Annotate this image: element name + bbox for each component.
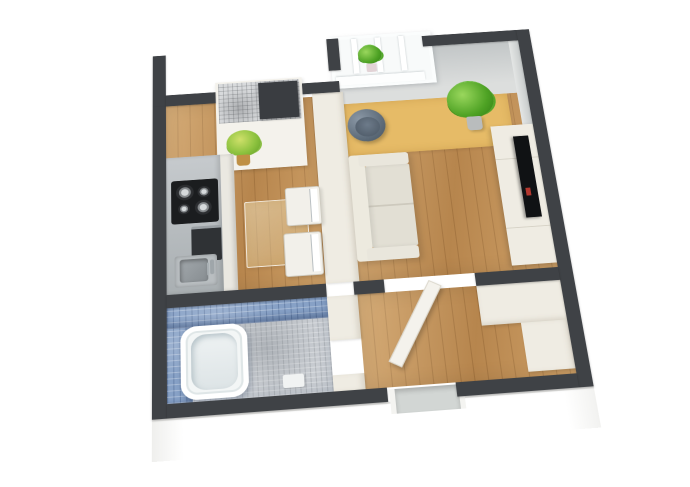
bath-hall-partition-upper <box>327 295 361 341</box>
bath-mat <box>283 374 305 389</box>
living-room-window <box>329 31 437 89</box>
sofa-seat <box>365 164 419 249</box>
floorplan-scene <box>0 0 690 487</box>
wall-west <box>152 106 167 419</box>
apartment-plan <box>124 24 618 464</box>
tv-screen-detail <box>525 188 531 196</box>
hall-closet <box>476 280 567 326</box>
burner <box>176 184 194 201</box>
sill-plant-pot <box>366 63 377 72</box>
chair-back <box>310 234 321 272</box>
wall-hall-north-left <box>353 279 385 294</box>
built-in-appliance <box>258 81 299 120</box>
bathtub <box>180 323 249 401</box>
burner <box>198 186 211 198</box>
dining-chair <box>283 231 324 277</box>
bathtub-basin <box>191 332 239 391</box>
wall-west-stub <box>153 56 166 108</box>
window-mullion <box>398 36 408 71</box>
dining-chair <box>285 186 323 227</box>
sofa-cushion-seam <box>369 203 414 208</box>
burner <box>178 203 190 214</box>
burner <box>195 199 212 215</box>
living-room-plant-pot <box>466 116 483 131</box>
tub-chair-seat <box>354 116 380 137</box>
sink-basin <box>180 258 209 283</box>
cabinet-seam <box>506 225 550 229</box>
faucet <box>210 259 214 274</box>
hall-wardrobe <box>521 319 576 371</box>
kitchen-sink <box>175 254 218 288</box>
chair-back <box>309 189 319 222</box>
sofa <box>348 152 420 262</box>
cooktop <box>171 178 219 224</box>
kitchen-plant-pot <box>236 154 250 166</box>
window-sill <box>336 72 426 86</box>
